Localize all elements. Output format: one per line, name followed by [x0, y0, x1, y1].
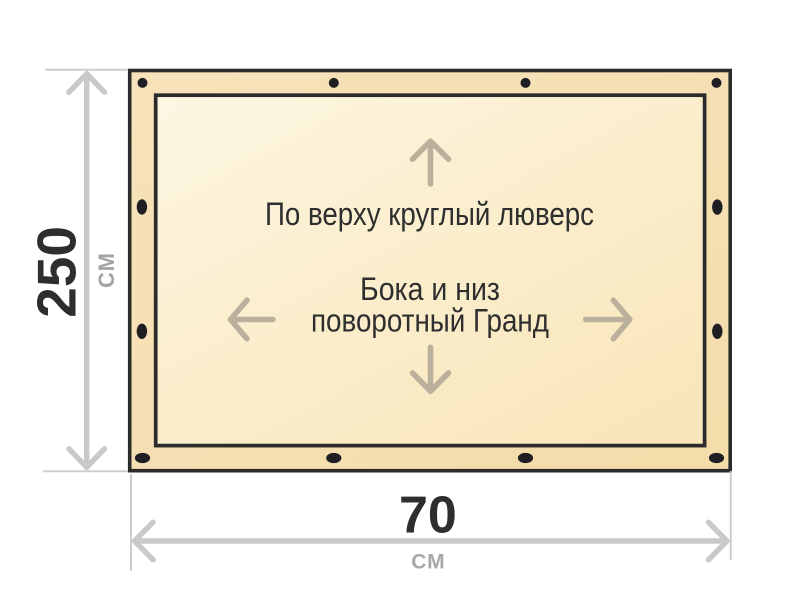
- svg-text:поворотный Гранд: поворотный Гранд: [311, 303, 549, 339]
- svg-text:250: 250: [26, 226, 88, 318]
- svg-text:По верху круглый люверс: По верху круглый люверс: [265, 196, 594, 232]
- svg-text:СМ: СМ: [411, 550, 445, 573]
- svg-text:70: 70: [399, 487, 457, 545]
- svg-text:СМ: СМ: [94, 252, 119, 288]
